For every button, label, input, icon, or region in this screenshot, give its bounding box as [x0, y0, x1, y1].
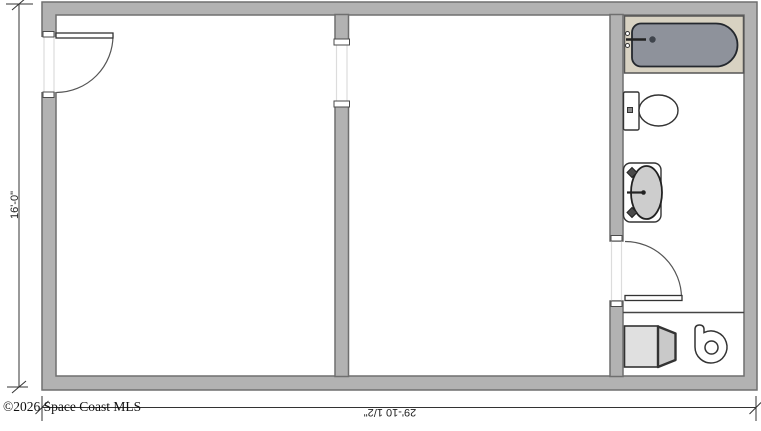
sink-vanity — [624, 163, 663, 222]
floor-plan-drawing — [0, 0, 761, 431]
tub-knob-icon — [626, 32, 630, 36]
toilet-flush-icon — [628, 108, 633, 113]
entry-door — [43, 32, 113, 98]
tub-basin — [632, 24, 738, 67]
width-dimension-label: 29'-10 1/2" — [330, 405, 450, 419]
water-heater — [695, 325, 727, 363]
floor-plan-page: 16'-0" 29'-10 1/2" ©2026 Space Coast MLS — [0, 0, 761, 431]
toilet — [624, 92, 679, 130]
tub-knob-icon — [626, 44, 630, 48]
copyright-watermark: ©2026 Space Coast MLS — [3, 399, 141, 415]
entry-door-leaf — [56, 33, 113, 38]
entry-door-swing-arc — [57, 36, 114, 93]
washer — [625, 326, 676, 367]
interior-walls — [335, 15, 623, 377]
sink-faucet-icon — [641, 190, 646, 195]
bathroom-door — [611, 236, 682, 307]
height-dimension-label: 16'-0" — [8, 175, 22, 235]
laundry-closet — [623, 313, 744, 368]
bathtub — [625, 16, 744, 73]
bathroom-door-leaf — [625, 296, 682, 301]
cased-opening — [334, 39, 350, 107]
tub-drain-icon — [649, 36, 655, 42]
bathroom-door-swing-arc — [625, 242, 682, 299]
toilet-bowl — [639, 95, 678, 126]
